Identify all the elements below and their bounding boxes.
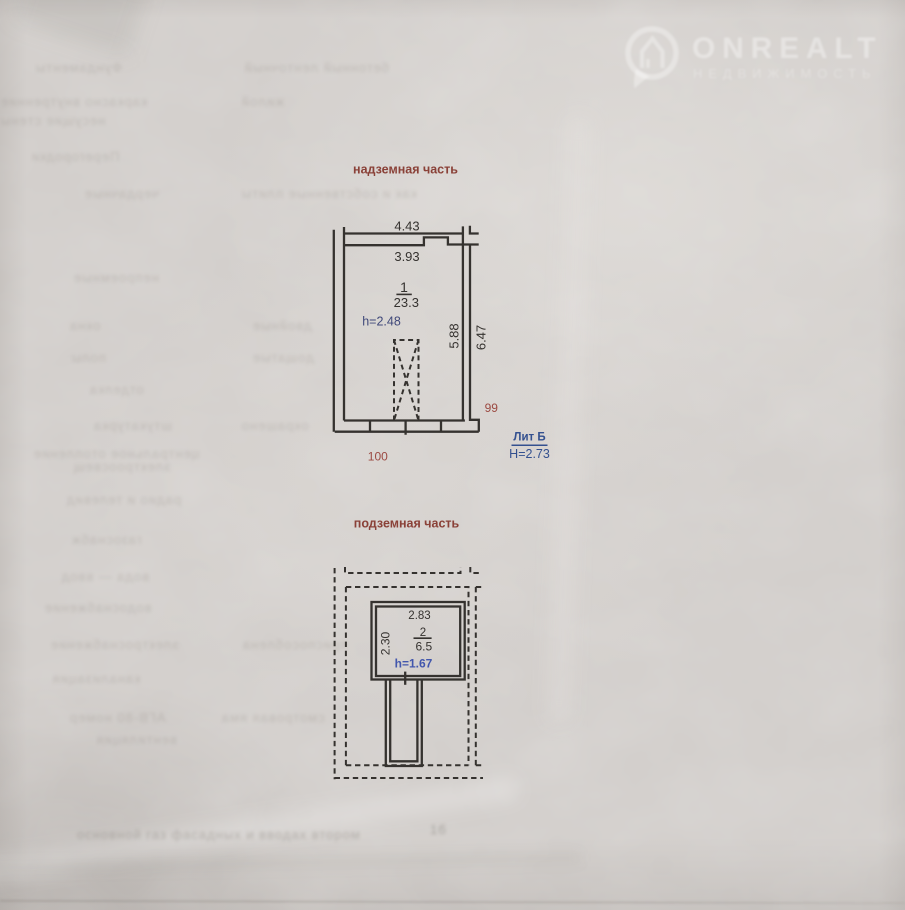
svg-text:h=1.67: h=1.67 — [395, 657, 433, 671]
svg-text:2.30: 2.30 — [379, 631, 393, 655]
svg-text:99: 99 — [485, 401, 499, 415]
svg-text:6.5: 6.5 — [415, 640, 432, 654]
svg-text:2: 2 — [420, 627, 426, 639]
svg-text:h=2.48: h=2.48 — [362, 315, 401, 329]
svg-text:2.83: 2.83 — [408, 610, 430, 622]
svg-text:надземная часть: надземная часть — [353, 162, 458, 176]
svg-text:подземная часть: подземная часть — [354, 517, 460, 531]
svg-text:Н=2.73: Н=2.73 — [509, 447, 550, 461]
svg-text:1: 1 — [400, 279, 408, 295]
svg-text:4.43: 4.43 — [394, 218, 419, 233]
svg-text:6.47: 6.47 — [474, 325, 489, 350]
svg-text:23.3: 23.3 — [394, 295, 419, 310]
svg-text:Лит Б: Лит Б — [513, 431, 545, 443]
svg-text:3.93: 3.93 — [394, 249, 419, 264]
svg-text:5.88: 5.88 — [447, 323, 462, 348]
svg-text:100: 100 — [368, 450, 388, 464]
